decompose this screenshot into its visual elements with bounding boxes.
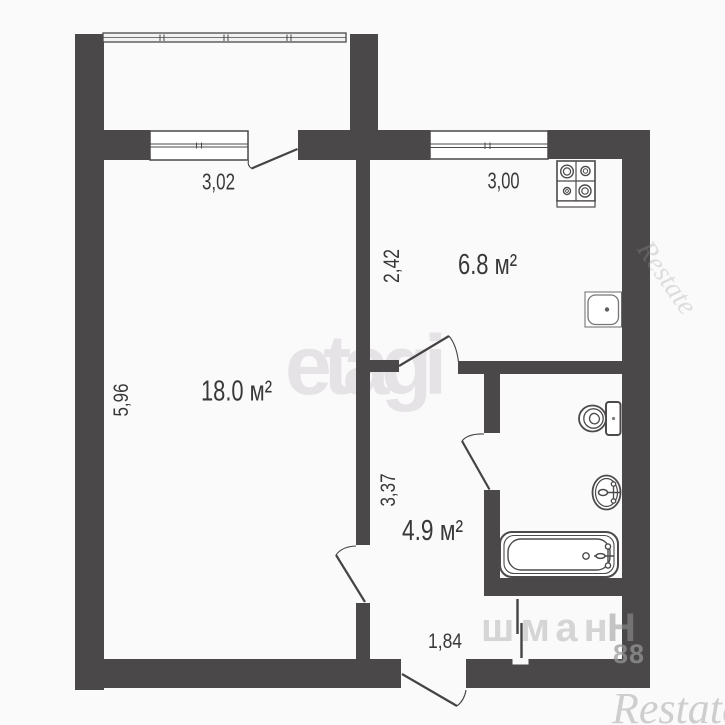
- svg-text:1,84: 1,84: [428, 630, 462, 653]
- svg-text:88: 88: [613, 639, 645, 669]
- svg-text:3,37: 3,37: [377, 474, 400, 507]
- svg-text:3,02: 3,02: [202, 169, 235, 195]
- svg-text:3,00: 3,00: [488, 168, 520, 194]
- svg-text:6.8 м²: 6.8 м²: [458, 249, 517, 281]
- svg-text:2,42: 2,42: [379, 249, 404, 283]
- svg-text:Restate: Restate: [611, 684, 725, 725]
- svg-text:5,96: 5,96: [110, 384, 133, 417]
- svg-text:18.0 м²: 18.0 м²: [201, 376, 272, 408]
- svg-text:шман: шман: [481, 606, 614, 650]
- svg-text:4.9 м²: 4.9 м²: [402, 515, 463, 547]
